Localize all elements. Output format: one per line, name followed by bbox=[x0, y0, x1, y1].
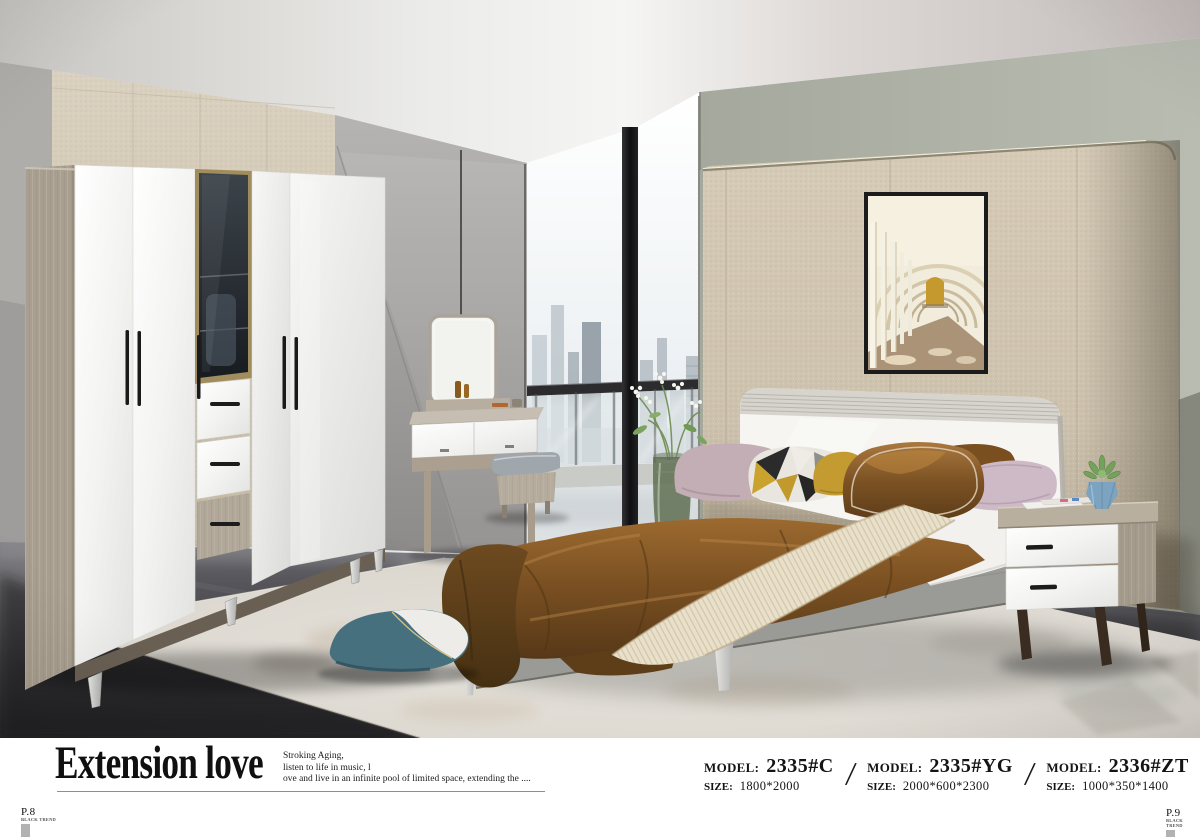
model-value: 2336#ZT bbox=[1109, 755, 1189, 777]
caption-divider bbox=[57, 791, 545, 792]
series-title: Extension love bbox=[55, 740, 263, 787]
model-value: 2335#C bbox=[766, 755, 833, 777]
spec-separator: / bbox=[1023, 756, 1036, 795]
size-value: 1800*2000 bbox=[740, 779, 800, 793]
page-marker-right: P.9 BLACK TREND bbox=[1166, 807, 1200, 837]
model-spec-block: MODEL:2335#YG SIZE:2000*600*2300 bbox=[867, 756, 1013, 794]
page-marker-left: P.8 BLACK TREND bbox=[21, 806, 56, 837]
size-label: SIZE: bbox=[704, 781, 733, 793]
series-description: Stroking Aging, listen to life in music,… bbox=[283, 751, 531, 786]
model-label: MODEL: bbox=[1046, 760, 1101, 775]
model-spec-block: MODEL:2335#C SIZE:1800*2000 bbox=[704, 756, 834, 794]
size-value: 1000*350*1400 bbox=[1082, 779, 1168, 793]
page-bar bbox=[1166, 830, 1175, 837]
model-label: MODEL: bbox=[704, 760, 759, 775]
page-bar bbox=[21, 824, 30, 837]
description-line: listen to life in music, l bbox=[283, 763, 531, 775]
model-specs: MODEL:2335#C SIZE:1800*2000 / MODEL:2335… bbox=[704, 756, 1189, 794]
page-tagline: BLACK TREND bbox=[1166, 819, 1200, 828]
size-label: SIZE: bbox=[867, 781, 896, 793]
size-label: SIZE: bbox=[1046, 781, 1075, 793]
catalog-page: Extension love Stroking Aging, listen to… bbox=[0, 0, 1200, 837]
spec-separator: / bbox=[844, 756, 857, 795]
model-value: 2335#YG bbox=[929, 755, 1013, 777]
size-value: 2000*600*2300 bbox=[903, 779, 989, 793]
model-spec-block: MODEL:2336#ZT SIZE:1000*350*1400 bbox=[1046, 756, 1188, 794]
description-line: ove and live in an infinite pool of limi… bbox=[283, 774, 531, 786]
model-label: MODEL: bbox=[867, 760, 922, 775]
description-line: Stroking Aging, bbox=[283, 751, 531, 763]
bedroom-photo bbox=[0, 0, 1200, 738]
page-tagline: BLACK TREND bbox=[21, 818, 56, 823]
